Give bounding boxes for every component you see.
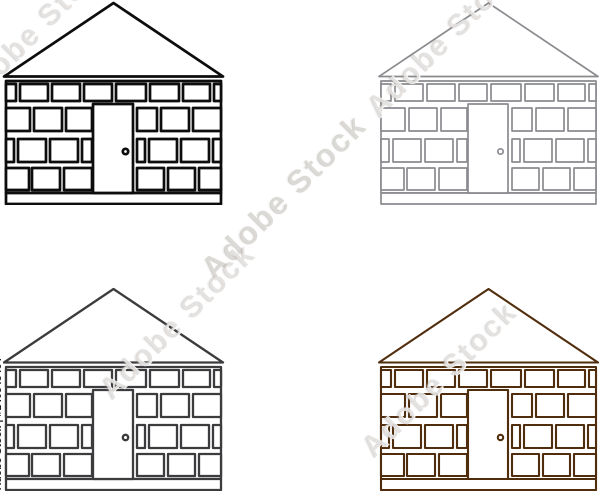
- brick-house-icon-dark-gray: [2, 286, 225, 491]
- doorknob: [498, 149, 503, 154]
- brick-house-icon-black: [2, 0, 225, 205]
- stock-image-canvas: Adobe Stock Adobe Stock Adobe Stock Adob…: [0, 0, 600, 491]
- base: [6, 193, 221, 204]
- stock-id-attribution: Adobe Stock | #140548464: [0, 358, 4, 490]
- base: [381, 193, 596, 204]
- doorknob: [498, 435, 503, 440]
- base: [381, 479, 596, 490]
- roof: [4, 3, 223, 77]
- doorknob: [123, 435, 128, 440]
- brick-house-icon: [377, 286, 600, 491]
- brick-house-icon: [2, 286, 225, 491]
- base: [6, 479, 221, 490]
- brick-house-icon-gray: [377, 0, 600, 205]
- roof: [379, 289, 598, 363]
- brick-house-icon: [2, 0, 225, 205]
- roof: [4, 289, 223, 363]
- brick-house-icon-brown: [377, 286, 600, 491]
- brick-house-icon: [377, 0, 600, 205]
- doorknob: [123, 149, 128, 154]
- roof: [379, 3, 598, 77]
